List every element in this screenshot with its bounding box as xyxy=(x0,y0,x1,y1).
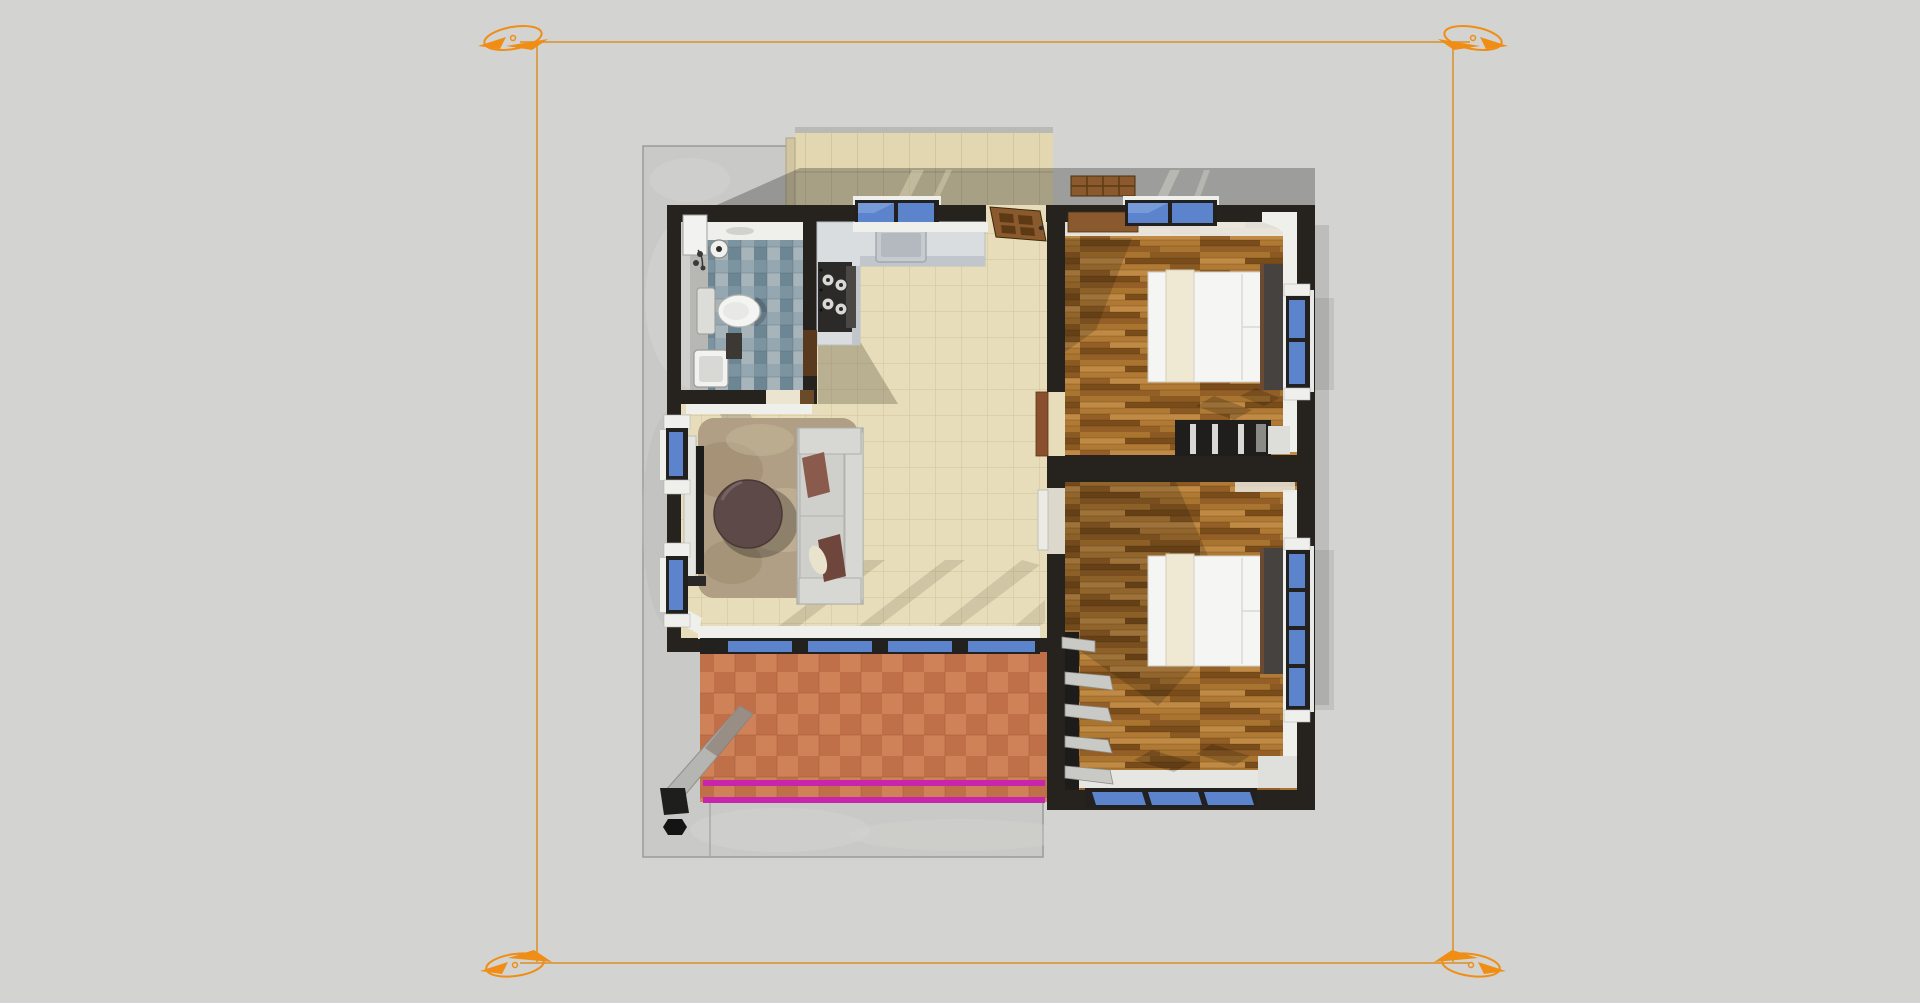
living-left-window-1[interactable] xyxy=(660,415,690,494)
vanity-sink[interactable] xyxy=(694,350,728,387)
bathroom-door[interactable] xyxy=(800,390,814,404)
viewport xyxy=(0,0,1920,1003)
living-bottom-windows[interactable] xyxy=(698,626,1040,654)
inter-bedroom-wall xyxy=(1047,455,1315,482)
living-left-window-2[interactable] xyxy=(660,543,690,627)
sofa[interactable] xyxy=(797,428,863,604)
porch-bench[interactable] xyxy=(1071,176,1135,196)
bath-cabinet[interactable] xyxy=(726,333,742,359)
tv[interactable] xyxy=(696,446,704,574)
bathroom-window-sill xyxy=(683,215,707,255)
bedroom1-door[interactable] xyxy=(1036,392,1048,456)
kitchen-window[interactable] xyxy=(853,196,941,232)
pipe-fitting xyxy=(663,819,687,835)
bedroom2-bottom-windows[interactable] xyxy=(1085,788,1257,808)
bedroom1-right-window[interactable] xyxy=(1284,284,1314,400)
roof-shadow xyxy=(710,168,1315,208)
tall-cabinet[interactable] xyxy=(803,330,817,376)
bedroom2-door[interactable] xyxy=(1038,490,1048,550)
entry-door[interactable] xyxy=(990,207,1046,241)
stove[interactable] xyxy=(818,262,856,332)
terrace[interactable] xyxy=(700,652,1047,803)
bedroom1-top-window[interactable] xyxy=(1123,196,1219,226)
door-knob xyxy=(1039,226,1043,230)
bedroom2-corner-sill xyxy=(1258,756,1297,788)
bed-2[interactable] xyxy=(1148,548,1283,674)
bedroom2-right-window[interactable] xyxy=(1284,538,1314,722)
living-top-sill xyxy=(686,404,812,414)
bed-1[interactable] xyxy=(1148,264,1283,390)
